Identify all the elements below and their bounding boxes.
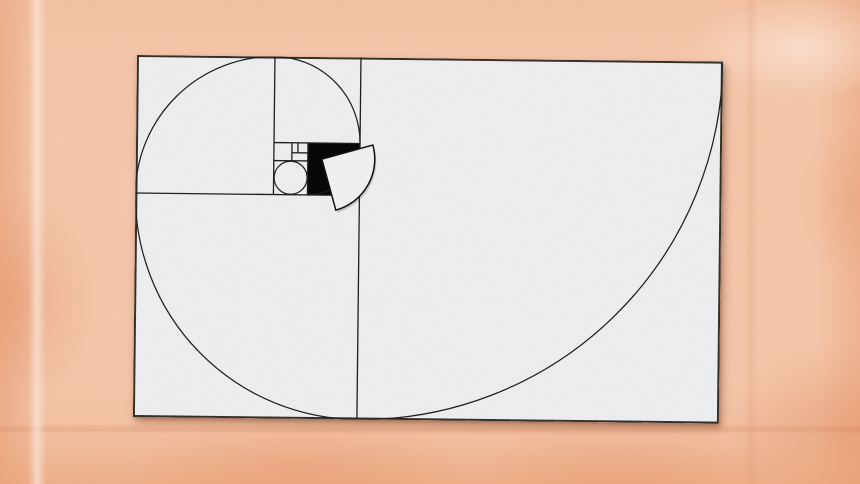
paper-streak-dark [744, 0, 758, 484]
fibonacci-spiral-diagram [133, 55, 723, 424]
paper-streak-light [28, 0, 46, 484]
card-face [134, 56, 722, 423]
paper-crease-horizontal [0, 424, 860, 434]
divider-v-3 [307, 143, 308, 195]
scene [0, 0, 860, 484]
golden-rectangle-card [133, 55, 723, 424]
